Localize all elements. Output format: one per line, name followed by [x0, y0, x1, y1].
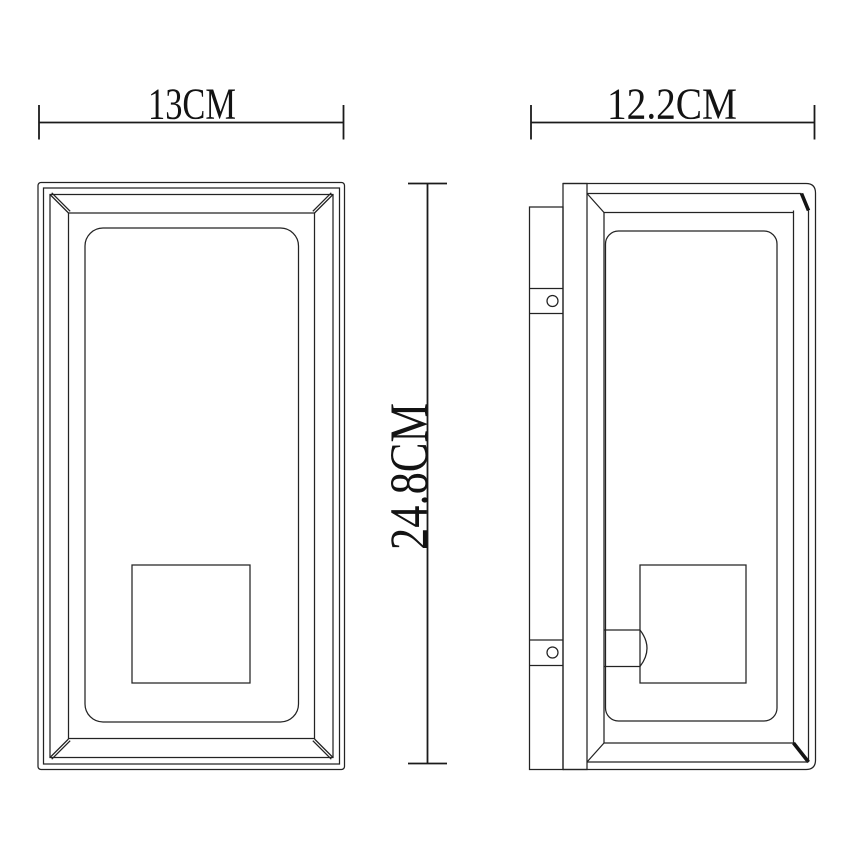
front-outer-frame-inner-line [44, 188, 340, 764]
side-body-bevel-inner-frame [587, 194, 794, 763]
dimension-label-front-width: 13CM [148, 80, 236, 129]
technical-drawing-page: 13CM 12.2CM 24.8CM [0, 0, 868, 868]
side-view [530, 184, 816, 770]
side-glass-panel [606, 231, 778, 721]
front-bevel-outer-frame [50, 195, 333, 758]
dimension-side-depth: 12.2CM [531, 80, 815, 140]
front-lamp-socket-box [132, 565, 250, 683]
dimension-front-width: 13CM [39, 80, 344, 140]
screw-hole-top [547, 296, 558, 307]
side-wall-plate [530, 207, 564, 770]
wall-lamp-dimension-drawing: 13CM 12.2CM 24.8CM [0, 0, 868, 868]
front-bevel-corner-lines [50, 193, 333, 759]
dimension-label-height: 24.8CM [379, 403, 439, 550]
screw-hole-bottom [547, 647, 558, 658]
side-back-bracket [563, 184, 587, 770]
side-lamp-socket-box [640, 565, 746, 683]
side-body-second-frame [587, 194, 809, 763]
dimension-height: 24.8CM [379, 184, 447, 764]
dimension-label-side-depth: 12.2CM [607, 80, 737, 129]
front-view [38, 183, 345, 770]
front-bevel-inner-frame [69, 213, 315, 739]
front-glass-panel [85, 228, 299, 722]
